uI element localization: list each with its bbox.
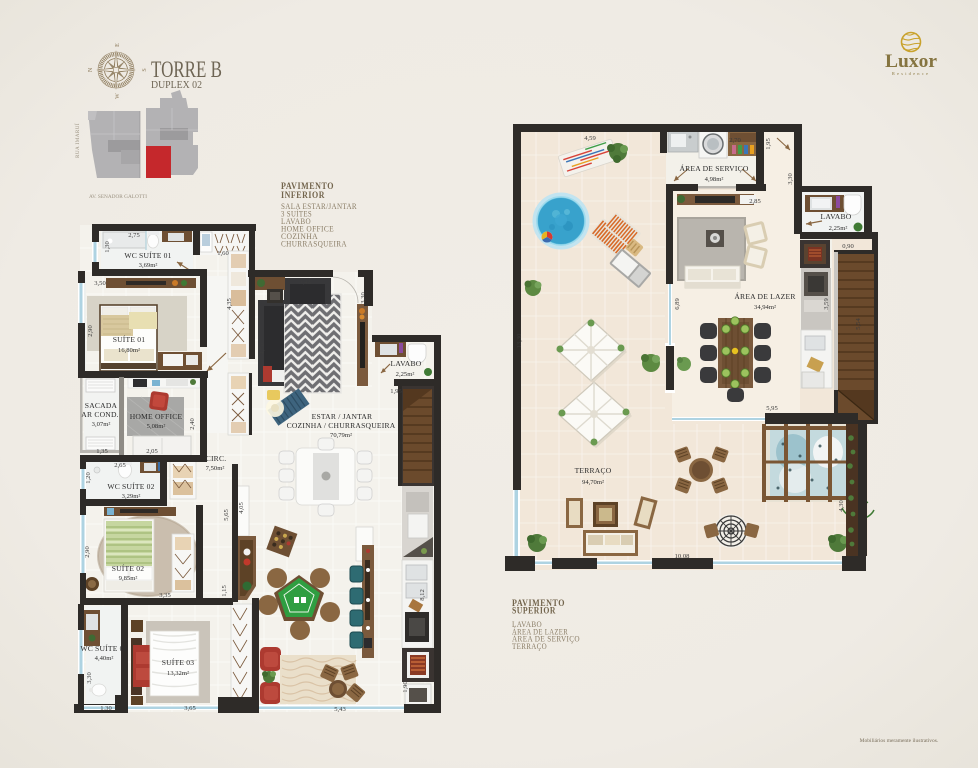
svg-text:4,30: 4,30 (838, 500, 845, 512)
svg-text:1,95: 1,95 (765, 138, 772, 150)
svg-text:Residence: Residence (892, 71, 930, 76)
svg-text:8,12: 8,12 (419, 589, 426, 601)
svg-text:3,07m²: 3,07m² (92, 421, 111, 428)
svg-text:2,90: 2,90 (84, 546, 91, 558)
svg-text:5,08m²: 5,08m² (147, 423, 166, 430)
svg-text:1,60: 1,60 (217, 250, 229, 257)
svg-text:HOME OFFICE: HOME OFFICE (130, 412, 183, 421)
svg-text:94,70m²: 94,70m² (582, 479, 604, 486)
svg-text:TERRAÇO: TERRAÇO (575, 466, 612, 475)
svg-text:Luxor: Luxor (885, 51, 938, 72)
svg-text:9,85m²: 9,85m² (119, 575, 138, 582)
svg-text:W: W (115, 93, 121, 99)
svg-text:2,05: 2,05 (146, 448, 158, 455)
svg-text:16,80m²: 16,80m² (118, 347, 140, 354)
svg-text:2,25m²: 2,25m² (396, 371, 415, 378)
svg-text:7,50m²: 7,50m² (206, 465, 225, 472)
svg-text:1,95: 1,95 (390, 388, 402, 395)
svg-text:ÁREA DE SERVIÇO: ÁREA DE SERVIÇO (679, 163, 748, 173)
svg-text:34,94m²: 34,94m² (754, 304, 776, 311)
svg-text:E: E (115, 43, 121, 47)
svg-text:3,30: 3,30 (86, 672, 93, 684)
svg-text:2,40: 2,40 (189, 418, 196, 430)
svg-text:3,65: 3,65 (184, 705, 196, 712)
svg-text:2,85: 2,85 (749, 198, 761, 205)
svg-text:4,59: 4,59 (584, 135, 596, 142)
svg-text:1,35: 1,35 (96, 448, 108, 455)
svg-text:4,35: 4,35 (226, 298, 233, 310)
svg-text:13,30: 13,30 (516, 333, 523, 349)
svg-text:CIRC.: CIRC. (206, 454, 227, 463)
svg-text:LAVABO: LAVABO (821, 212, 852, 221)
svg-text:2,70: 2,70 (729, 137, 741, 144)
svg-text:1,15: 1,15 (221, 585, 228, 597)
svg-text:2,75: 2,75 (128, 232, 140, 239)
svg-text:70,79m²: 70,79m² (330, 432, 352, 439)
svg-text:SACADA: SACADA (85, 401, 118, 410)
svg-text:CHURRASQUEIRA: CHURRASQUEIRA (281, 240, 347, 249)
svg-text:2,65: 2,65 (114, 462, 126, 469)
svg-text:S: S (142, 68, 148, 71)
svg-text:LAVABO: LAVABO (391, 359, 422, 368)
svg-text:0,90: 0,90 (842, 243, 854, 250)
svg-text:6,89: 6,89 (674, 298, 681, 310)
svg-text:3,69m²: 3,69m² (139, 262, 158, 269)
svg-text:10,08: 10,08 (675, 553, 691, 560)
svg-text:2,90: 2,90 (87, 325, 94, 337)
svg-text:3,48: 3,48 (299, 279, 311, 286)
svg-text:SUÍTE 03: SUÍTE 03 (162, 657, 195, 667)
svg-text:1,30: 1,30 (100, 705, 112, 712)
svg-text:3,59: 3,59 (823, 298, 830, 310)
svg-text:5,43: 5,43 (334, 706, 346, 713)
svg-text:COZINHA / CHURRASQUEIRA: COZINHA / CHURRASQUEIRA (287, 421, 396, 430)
svg-text:4,98m²: 4,98m² (705, 176, 724, 183)
svg-text:INFERIOR: INFERIOR (281, 190, 325, 200)
svg-text:WC SUÍTE 01: WC SUÍTE 01 (124, 250, 171, 260)
svg-text:DUPLEX 02: DUPLEX 02 (151, 79, 202, 91)
svg-text:1,30: 1,30 (104, 241, 111, 253)
svg-text:1,20: 1,20 (85, 472, 92, 484)
svg-text:SUÍTE 01: SUÍTE 01 (113, 334, 146, 344)
svg-text:AV. SENADOR GALOTTI: AV. SENADOR GALOTTI (89, 194, 147, 200)
svg-text:4,05: 4,05 (238, 502, 245, 514)
svg-text:2,25m²: 2,25m² (829, 225, 848, 232)
svg-text:ÁREA DE LAZER: ÁREA DE LAZER (734, 291, 796, 301)
svg-text:AR COND.: AR COND. (81, 410, 118, 419)
svg-text:4,70: 4,70 (259, 343, 266, 355)
svg-text:ESTAR / JANTAR: ESTAR / JANTAR (312, 412, 373, 421)
svg-text:SUPERIOR: SUPERIOR (512, 606, 556, 616)
svg-text:WC SUÍTE 02: WC SUÍTE 02 (107, 481, 154, 491)
svg-text:TERRAÇO: TERRAÇO (512, 642, 547, 651)
svg-text:13,32m²: 13,32m² (167, 670, 189, 677)
svg-text:RUA IMARUÍ: RUA IMARUÍ (73, 123, 81, 158)
svg-text:N: N (88, 67, 94, 72)
svg-text:3,35: 3,35 (159, 592, 171, 599)
svg-text:3,30: 3,30 (360, 292, 367, 304)
svg-text:WC SUÍTE 03: WC SUÍTE 03 (80, 643, 127, 653)
svg-text:3,29m²: 3,29m² (122, 493, 141, 500)
svg-text:SUÍTE 02: SUÍTE 02 (112, 563, 145, 573)
svg-text:5,65: 5,65 (223, 509, 230, 521)
svg-text:Mobiliários meramente ilustrat: Mobiliários meramente ilustrativos. (860, 738, 939, 744)
svg-text:3,30: 3,30 (787, 173, 794, 185)
svg-text:4,40m²: 4,40m² (95, 655, 114, 662)
svg-text:5,54: 5,54 (855, 318, 862, 330)
svg-text:1,90: 1,90 (402, 681, 409, 693)
svg-text:3,50: 3,50 (94, 280, 106, 287)
svg-text:5,95: 5,95 (766, 405, 778, 412)
